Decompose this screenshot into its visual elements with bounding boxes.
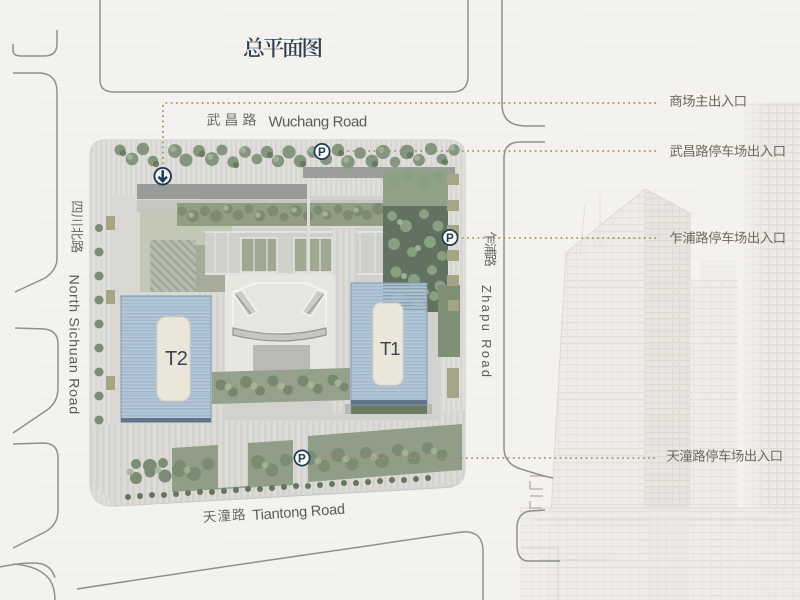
svg-text:North Sichuan Road: North Sichuan Road — [66, 275, 82, 415]
svg-text:P: P — [446, 232, 454, 245]
svg-text:P: P — [318, 146, 326, 159]
svg-text:Wuchang Road: Wuchang Road — [269, 113, 367, 130]
svg-text:T2: T2 — [165, 348, 188, 370]
svg-text:Zhapu Road: Zhapu Road — [479, 285, 494, 379]
svg-text:T1: T1 — [380, 338, 400, 359]
svg-text:P: P — [298, 452, 306, 465]
